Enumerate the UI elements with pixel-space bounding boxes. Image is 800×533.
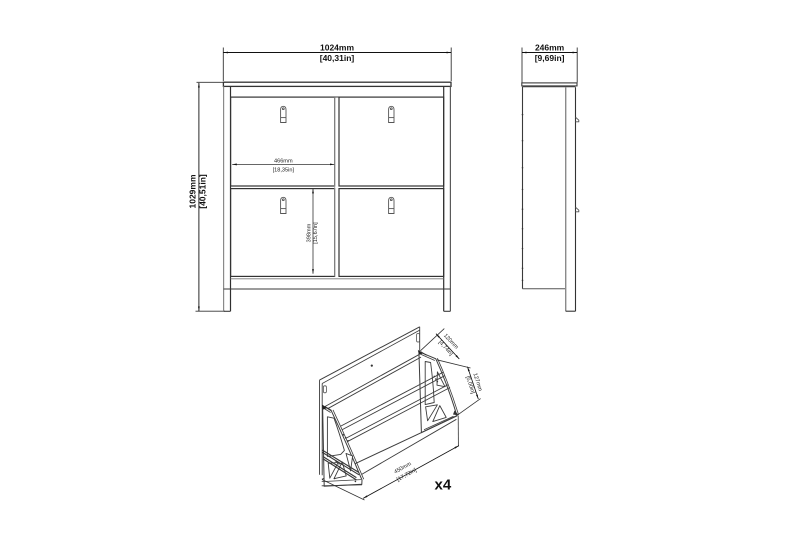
svg-text:466mm: 466mm bbox=[274, 159, 293, 165]
svg-text:246mm: 246mm bbox=[535, 43, 565, 53]
svg-text:398mm: 398mm bbox=[306, 223, 312, 242]
svg-text:[15,67in]: [15,67in] bbox=[313, 222, 319, 244]
svg-text:x4: x4 bbox=[435, 477, 452, 494]
svg-text:[40,31in]: [40,31in] bbox=[320, 53, 355, 63]
svg-text:[9,69in]: [9,69in] bbox=[535, 53, 565, 63]
svg-text:[18,35in]: [18,35in] bbox=[273, 168, 295, 174]
svg-text:1024mm: 1024mm bbox=[320, 43, 354, 53]
svg-text:1029mm: 1029mm bbox=[187, 174, 197, 208]
svg-text:[40,51in]: [40,51in] bbox=[198, 174, 208, 209]
